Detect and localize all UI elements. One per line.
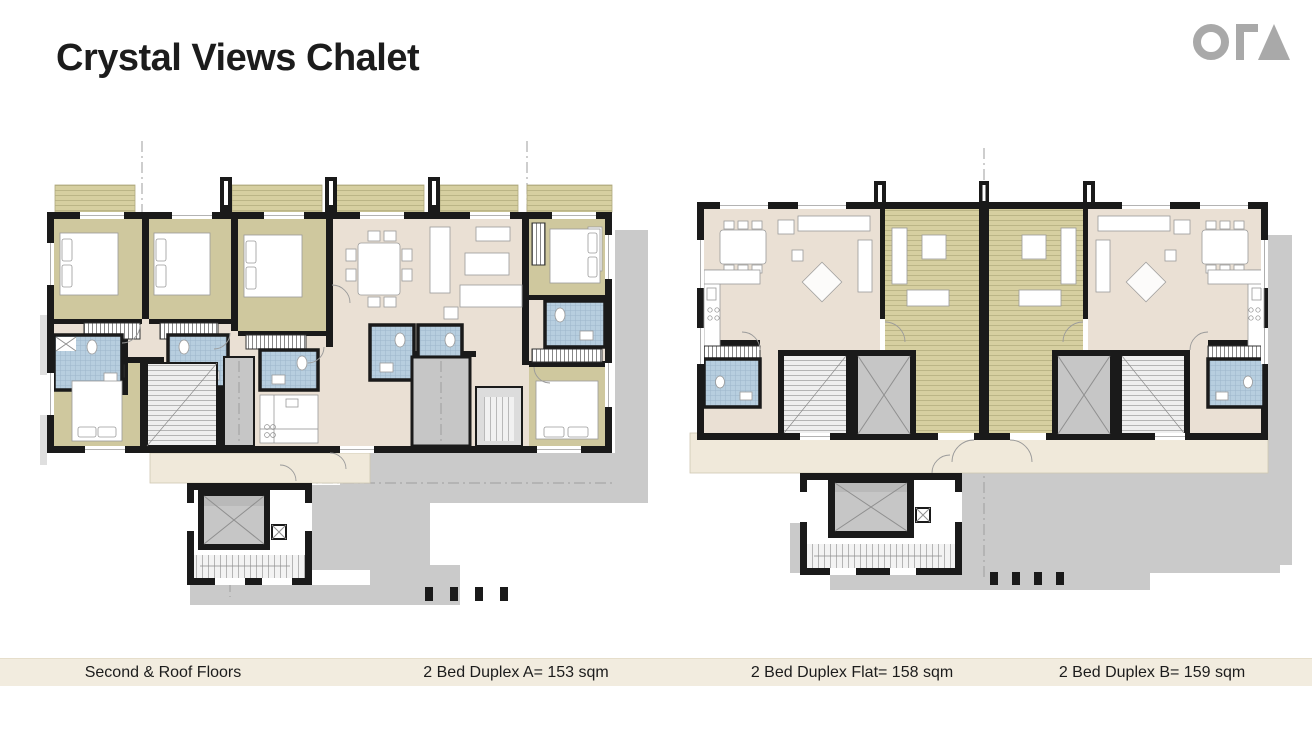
- caption-duplex-a: 2 Bed Duplex A= 153 sqm: [423, 664, 608, 682]
- caption-floors: Second & Roof Floors: [85, 664, 242, 682]
- stair-tower: [800, 455, 962, 575]
- caption-duplex-flat: 2 Bed Duplex Flat= 158 sqm: [751, 664, 953, 682]
- ora-logo: [1192, 20, 1294, 64]
- caption-duplex-b: 2 Bed Duplex B= 159 sqm: [1059, 664, 1245, 682]
- slide: Crystal Views Chalet: [0, 0, 1312, 740]
- balcony-strip: [55, 177, 612, 215]
- party-wall: [979, 181, 989, 440]
- kitchen: [260, 395, 318, 443]
- page-title: Crystal Views Chalet: [56, 36, 419, 82]
- stair-tower: [187, 465, 312, 585]
- caption-bar: Second & Roof Floors 2 Bed Duplex A= 153…: [0, 658, 1312, 686]
- floor-plan-right: [680, 140, 1300, 610]
- logo-o-glyph: [1197, 28, 1225, 56]
- floor-plan-left: [40, 135, 655, 605]
- logo-delta-glyph: [1258, 24, 1290, 60]
